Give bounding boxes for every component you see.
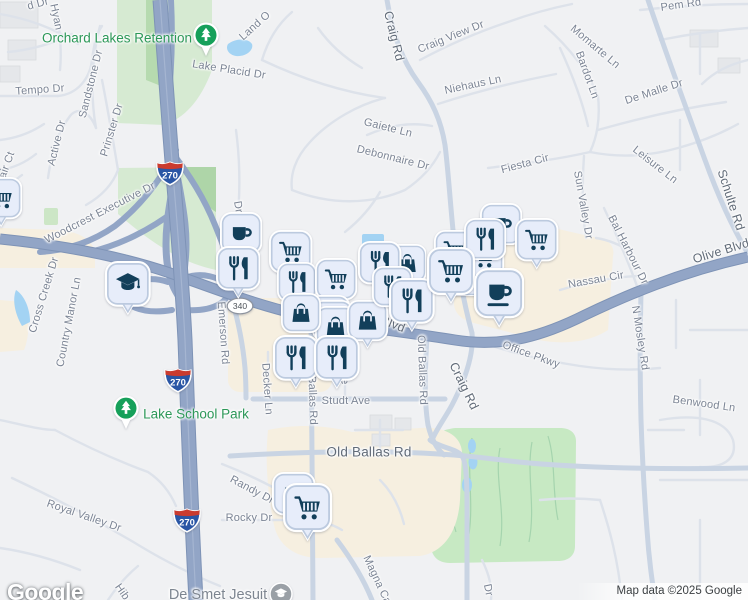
place-label[interactable]: Orchard Lakes Retention xyxy=(42,31,192,46)
place-label[interactable]: De Smet Jesuit xyxy=(169,587,267,600)
restaurant-poi-pin[interactable] xyxy=(314,335,360,394)
restaurant-poi-pin[interactable] xyxy=(216,246,261,304)
interstate-270-shield: 270 xyxy=(173,508,201,533)
cart-poi-pin[interactable] xyxy=(427,247,475,309)
restaurant-poi-pin[interactable] xyxy=(273,335,319,394)
interstate-270-shield: 270 xyxy=(164,368,192,393)
interstate-270-shield: 270 xyxy=(156,161,184,186)
park-tree-pin[interactable] xyxy=(110,395,142,437)
school-poi-pin[interactable] xyxy=(105,261,151,320)
svg-text:270: 270 xyxy=(162,171,178,182)
road-n-mosley xyxy=(640,292,655,600)
svg-text:270: 270 xyxy=(179,518,195,529)
building-footprints xyxy=(0,2,740,446)
map-attribution: Map data ©2025 Google xyxy=(577,583,748,600)
park-tree-pin[interactable] xyxy=(190,22,222,64)
cart-poi-pin[interactable] xyxy=(315,258,357,300)
cart-poi-pin[interactable] xyxy=(515,218,558,274)
google-logo[interactable]: Google xyxy=(7,579,83,600)
school-circle-marker[interactable] xyxy=(269,582,293,600)
svg-text:270: 270 xyxy=(170,378,186,389)
place-label[interactable]: Lake School Park xyxy=(143,407,249,422)
cart-poi-pin[interactable] xyxy=(283,483,332,546)
coffee-saucer-poi-pin[interactable] xyxy=(474,268,524,333)
cart-poi-pin[interactable] xyxy=(0,177,22,232)
bag-poi-pin[interactable] xyxy=(281,293,321,333)
map-canvas[interactable]: d DrHyanLake Placid DrTempo DrSandstone … xyxy=(0,0,748,600)
